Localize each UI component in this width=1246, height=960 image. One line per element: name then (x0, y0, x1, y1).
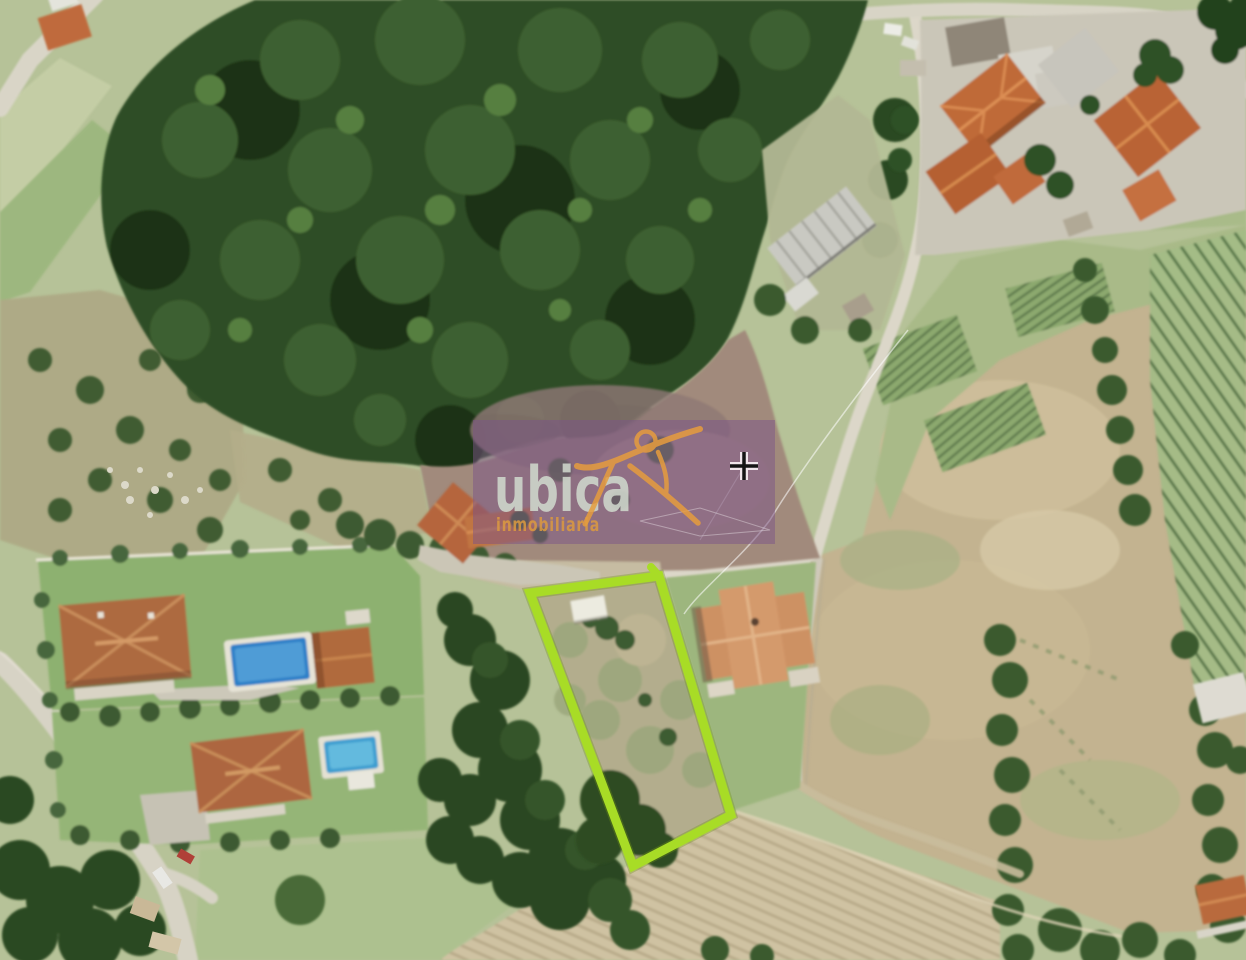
pool-shed (347, 771, 375, 791)
villa-pool-1 (224, 632, 317, 693)
watermark: ubica inmobiliaria (473, 420, 775, 544)
aerial-photo: ubica inmobiliaria (0, 0, 1246, 960)
villa-house-1 (59, 595, 193, 702)
villa-pool-2 (318, 731, 384, 779)
village (883, 0, 1246, 255)
aerial-map-canvas[interactable]: ubica inmobiliaria (0, 0, 1246, 960)
